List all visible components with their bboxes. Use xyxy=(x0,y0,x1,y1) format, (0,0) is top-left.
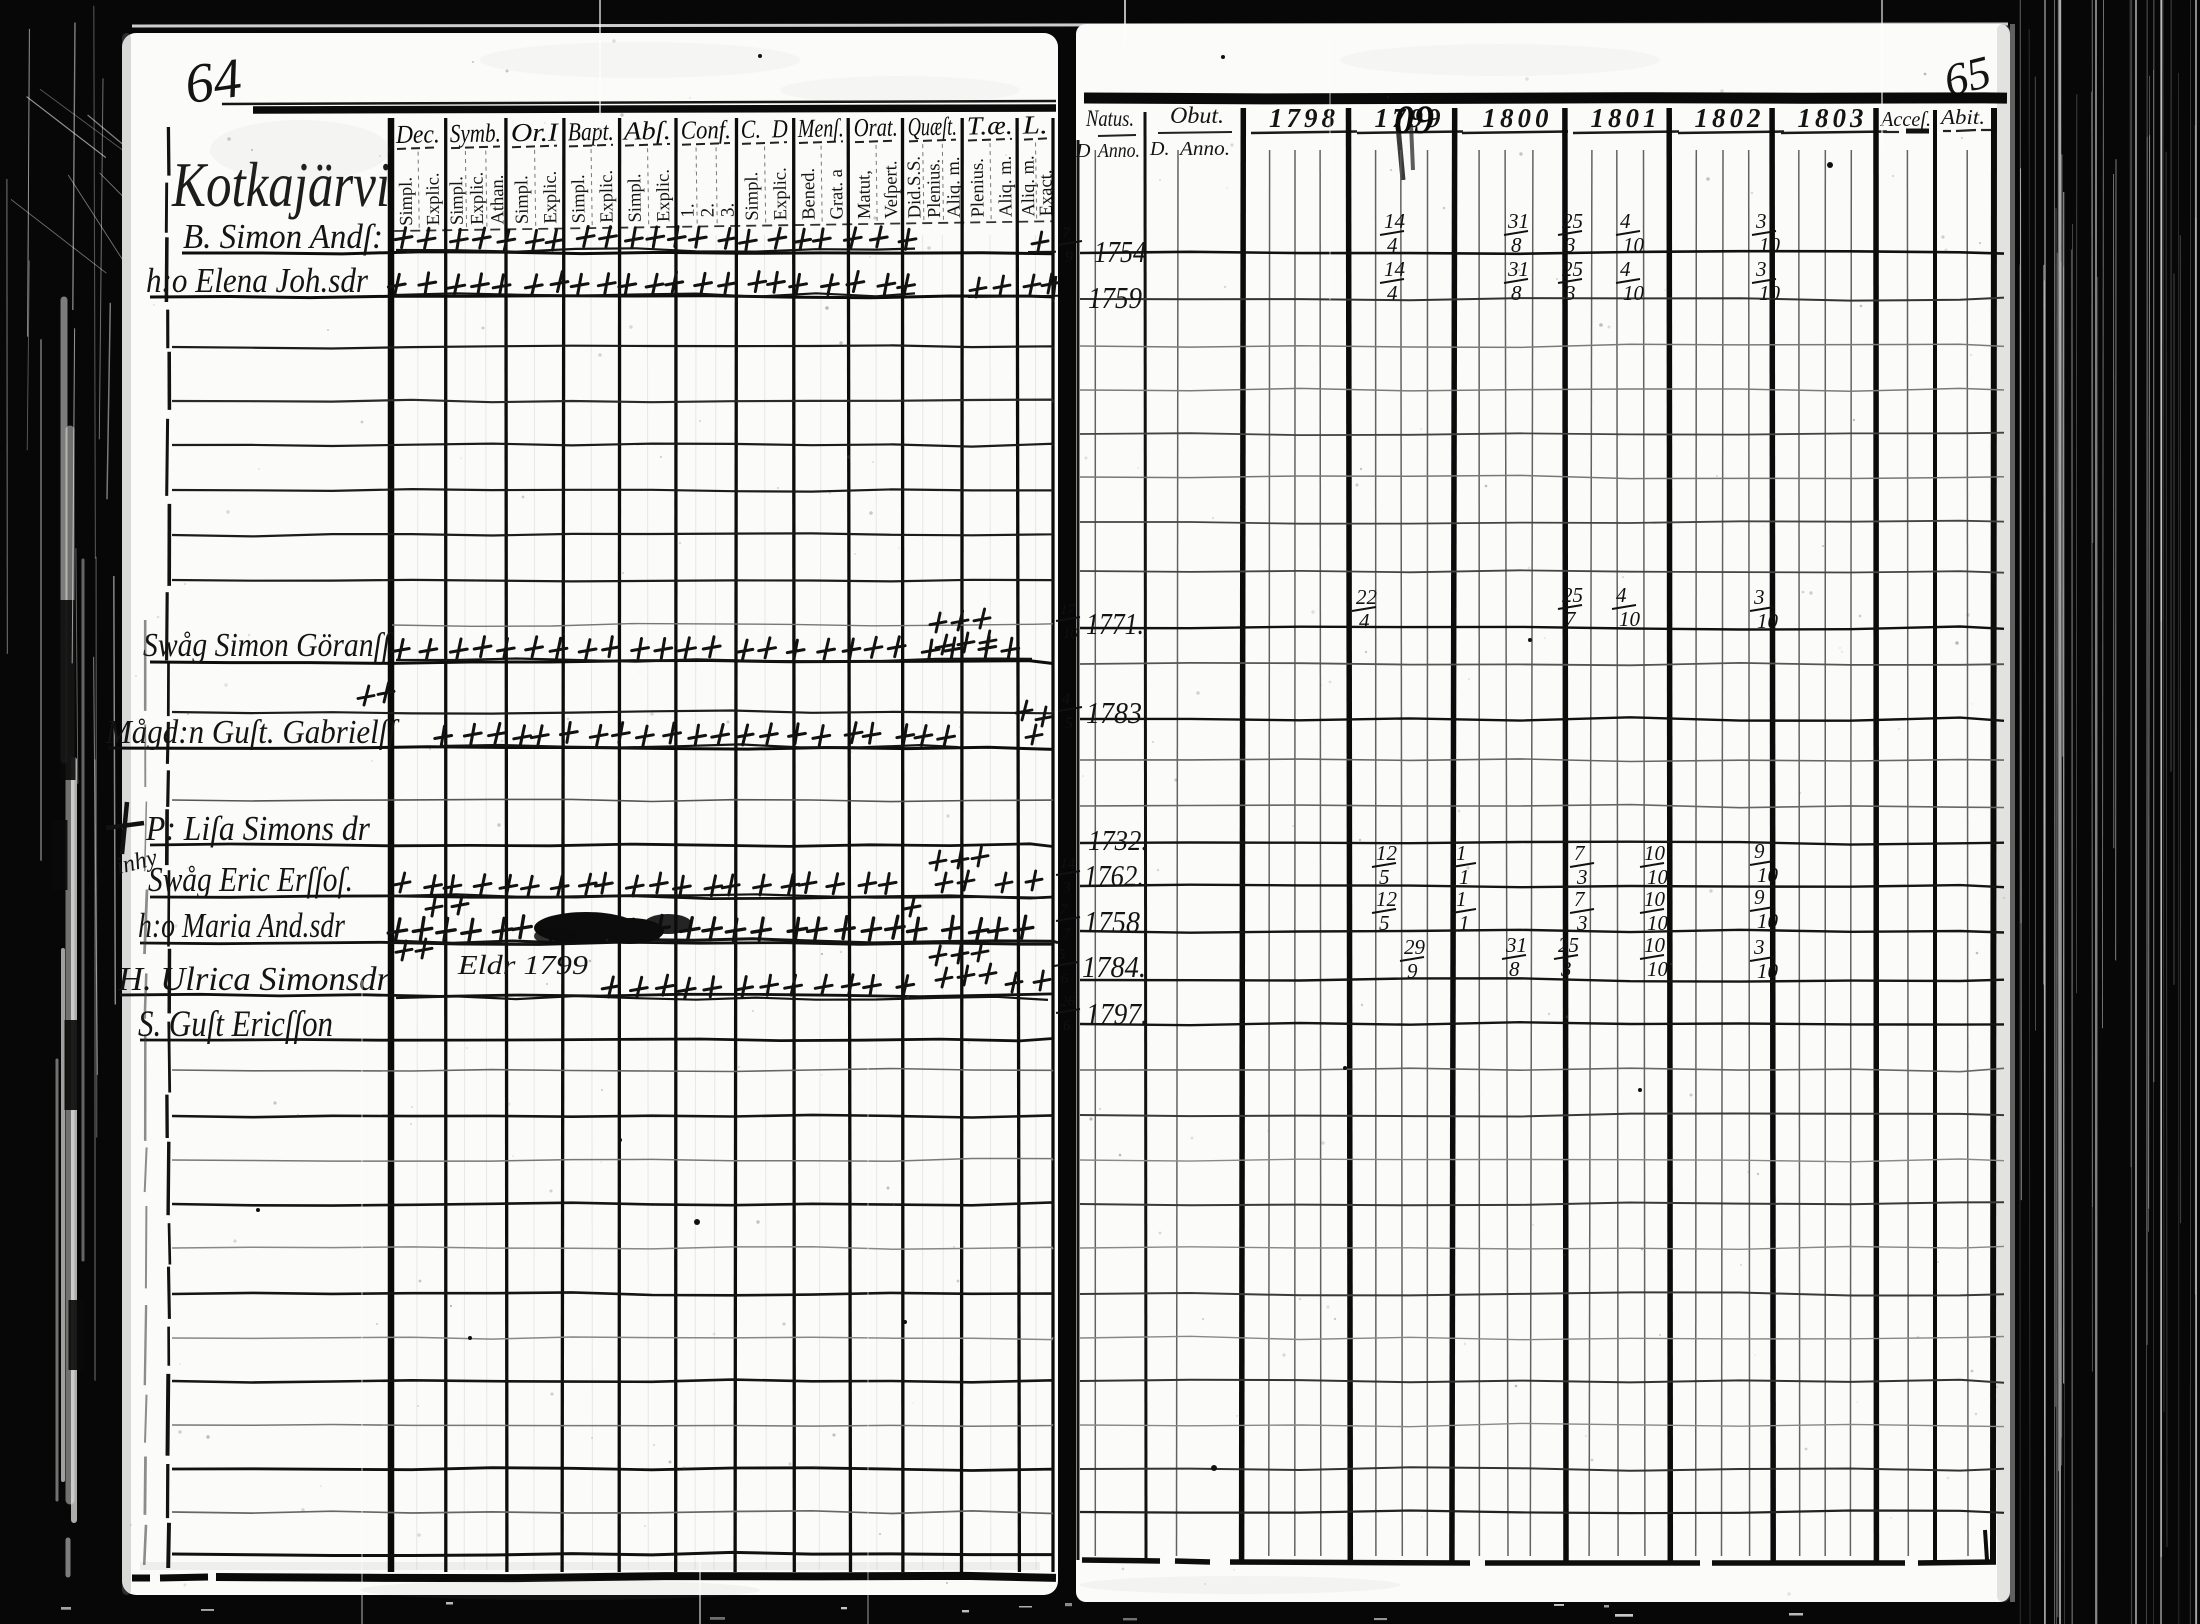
svg-text:31: 31 xyxy=(1507,209,1529,233)
svg-text:L.: L. xyxy=(1021,110,1048,139)
svg-text:4: 4 xyxy=(1620,209,1631,233)
svg-text:1758: 1758 xyxy=(1084,904,1140,939)
svg-text:8: 8 xyxy=(1511,233,1522,257)
svg-text:Menſ.: Menſ. xyxy=(797,113,844,143)
svg-text:12: 12 xyxy=(1376,841,1398,865)
svg-text:25: 25 xyxy=(1558,933,1579,957)
svg-text:1: 1 xyxy=(1456,841,1467,865)
svg-text:Natus.: Natus. xyxy=(1085,106,1134,131)
svg-text:10: 10 xyxy=(1063,626,1079,642)
svg-text:31: 31 xyxy=(1505,933,1527,957)
svg-text:6: 6 xyxy=(1063,1018,1071,1034)
svg-text:10: 10 xyxy=(1759,233,1781,257)
svg-text:10: 10 xyxy=(1647,865,1669,889)
svg-text:10: 10 xyxy=(1757,909,1779,933)
svg-text:Simpl.: Simpl. xyxy=(396,177,417,226)
svg-text:1759: 1759 xyxy=(1088,280,1142,315)
svg-text:4: 4 xyxy=(1062,691,1070,708)
svg-text:9: 9 xyxy=(1754,839,1765,863)
svg-text:D.: D. xyxy=(1149,138,1169,160)
svg-text:3: 3 xyxy=(1576,865,1588,889)
svg-text:Veſpert.: Veſpert. xyxy=(881,160,902,218)
svg-text:3: 3 xyxy=(1560,957,1572,981)
svg-text:1754: 1754 xyxy=(1094,234,1146,269)
svg-text:1: 1 xyxy=(1459,911,1470,935)
svg-text:64: 64 xyxy=(181,47,245,116)
svg-text:3: 3 xyxy=(1753,585,1765,609)
svg-text:8: 8 xyxy=(1511,281,1522,305)
svg-text:5: 5 xyxy=(1379,911,1390,935)
svg-text:1732.: 1732. xyxy=(1088,826,1148,857)
svg-text:H. Ulrica Simonsdr: H. Ulrica Simonsdr xyxy=(117,961,391,998)
svg-text:14: 14 xyxy=(1060,856,1076,872)
svg-text:Explic.: Explic. xyxy=(771,167,792,220)
svg-text:1803: 1803 xyxy=(1798,103,1868,133)
svg-text:10: 10 xyxy=(1619,607,1641,631)
svg-text:10: 10 xyxy=(1623,281,1645,305)
svg-text:Plenius.: Plenius. xyxy=(924,159,945,218)
svg-text:6: 6 xyxy=(1061,971,1069,987)
svg-text:9: 9 xyxy=(1754,885,1765,909)
svg-text:7: 7 xyxy=(1062,225,1071,242)
svg-text:3: 3 xyxy=(1564,233,1576,257)
svg-text:Anno.: Anno. xyxy=(1178,138,1230,160)
svg-text:12: 12 xyxy=(1376,887,1398,911)
svg-text:4: 4 xyxy=(1616,583,1627,607)
svg-text:1762.: 1762. xyxy=(1084,858,1144,893)
svg-text:Bened.: Bened. xyxy=(799,168,820,220)
svg-text:1783: 1783 xyxy=(1086,695,1142,730)
svg-text:25: 25 xyxy=(1562,209,1583,233)
svg-text:C. D: C. D xyxy=(741,114,789,144)
svg-text:Or.I: Or.I xyxy=(511,118,560,148)
svg-text:Explic.: Explic. xyxy=(423,172,444,225)
svg-text:Grat. a: Grat. a xyxy=(827,169,848,220)
svg-text:10: 10 xyxy=(1644,887,1666,911)
svg-text:1798: 1798 xyxy=(1269,103,1339,133)
svg-text:10: 10 xyxy=(1644,933,1666,957)
svg-text:h:o Elena Joh.sdr: h:o Elena Joh.sdr xyxy=(146,261,368,300)
svg-text:9: 9 xyxy=(1407,959,1418,983)
svg-text:Aliq. m.: Aliq. m. xyxy=(996,156,1017,217)
svg-text:Eldr 1799: Eldr 1799 xyxy=(457,950,589,980)
svg-text:1800: 1800 xyxy=(1483,103,1553,133)
svg-text:8: 8 xyxy=(1509,957,1520,981)
svg-text:Swåg Simon Göranſſ: Swåg Simon Göranſſ xyxy=(143,627,394,664)
svg-text:31: 31 xyxy=(1507,257,1529,281)
svg-text:5: 5 xyxy=(1058,947,1066,963)
svg-text:P: Liſa Simons dr: P: Liſa Simons dr xyxy=(145,809,370,848)
svg-text:1802: 1802 xyxy=(1695,103,1765,133)
svg-text:Acceſ.: Acceſ. xyxy=(1879,107,1931,131)
svg-text:1: 1 xyxy=(1456,887,1467,911)
svg-text:Orat.: Orat. xyxy=(854,113,898,143)
svg-text:1784.: 1784. xyxy=(1082,949,1146,984)
svg-text:1801: 1801 xyxy=(1591,103,1661,133)
svg-text:10: 10 xyxy=(1644,841,1666,865)
svg-text:10: 10 xyxy=(1757,609,1779,633)
svg-text:Did.S.S.: Did.S.S. xyxy=(905,156,926,218)
svg-text:Dec.: Dec. xyxy=(395,119,440,149)
svg-text:Explic.: Explic. xyxy=(654,169,675,222)
svg-text:Anno.: Anno. xyxy=(1096,140,1140,162)
svg-text:3: 3 xyxy=(1755,257,1767,281)
svg-text:3: 3 xyxy=(1564,281,1576,305)
svg-text:10: 10 xyxy=(1757,959,1779,983)
svg-text:Conf.: Conf. xyxy=(681,115,731,145)
svg-text:10: 10 xyxy=(1647,911,1669,935)
svg-text:Simpl.: Simpl. xyxy=(512,175,533,224)
svg-text:Abit.: Abit. xyxy=(1939,105,1985,129)
svg-text:3: 3 xyxy=(1753,935,1765,959)
svg-text:10: 10 xyxy=(1647,957,1669,981)
svg-text:17: 17 xyxy=(1060,602,1077,618)
svg-text:3: 3 xyxy=(1755,209,1767,233)
svg-text:Explic.: Explic. xyxy=(467,172,488,225)
svg-text:S. Guſt Ericſſon: S. Guſt Ericſſon xyxy=(138,1004,333,1045)
svg-text:1.: 1. xyxy=(677,203,698,218)
svg-text:3: 3 xyxy=(1062,880,1071,896)
svg-text:25: 25 xyxy=(1562,257,1583,281)
svg-text:Simpl.: Simpl. xyxy=(625,173,646,222)
svg-text:1771.: 1771. xyxy=(1086,606,1144,641)
svg-text:Explic.: Explic. xyxy=(597,170,618,223)
svg-text:5: 5 xyxy=(1379,865,1390,889)
svg-text:09: 09 xyxy=(1394,97,1434,142)
svg-text:2.: 2. xyxy=(697,203,718,218)
svg-text:Plenius.: Plenius. xyxy=(968,158,989,217)
svg-text:Simpl.: Simpl. xyxy=(569,174,590,223)
svg-text:Abſ.: Abſ. xyxy=(621,116,671,146)
svg-text:h:o Maria And.sdr: h:o Maria And.sdr xyxy=(138,906,345,945)
svg-text:7: 7 xyxy=(1574,841,1586,865)
svg-text:4: 4 xyxy=(1387,281,1398,305)
svg-text:Swåg Eric Erſſoſ.: Swåg Eric Erſſoſ. xyxy=(148,860,353,899)
svg-text:7: 7 xyxy=(1565,607,1577,631)
svg-text:Obut.: Obut. xyxy=(1170,103,1224,128)
svg-text:10: 10 xyxy=(1759,281,1781,305)
svg-text:14: 14 xyxy=(1384,257,1406,281)
svg-text:Simpl.: Simpl. xyxy=(742,172,763,221)
svg-text:Symb.: Symb. xyxy=(450,118,501,148)
svg-text:Matut,: Matut, xyxy=(854,170,875,219)
svg-text:4: 4 xyxy=(1359,609,1370,633)
svg-text:T.æ.: T.æ. xyxy=(967,111,1013,141)
svg-text:4: 4 xyxy=(1387,233,1398,257)
svg-text:Bapt.: Bapt. xyxy=(568,117,614,147)
svg-text:7: 7 xyxy=(1574,887,1586,911)
svg-text:1797.: 1797. xyxy=(1086,996,1148,1031)
svg-text:Mågd:n Guſt. Gabrielſſ: Mågd:n Guſt. Gabrielſſ xyxy=(105,714,400,751)
svg-text:Simpl.: Simpl. xyxy=(447,176,468,225)
svg-text:29: 29 xyxy=(1404,935,1426,959)
svg-text:25: 25 xyxy=(1562,583,1583,607)
svg-text:B. Simon Andſ:: B. Simon Andſ: xyxy=(183,217,383,256)
svg-text:Quæſt.: Quæſt. xyxy=(908,112,957,142)
svg-text:3: 3 xyxy=(1576,911,1588,935)
svg-text:Explic.: Explic. xyxy=(541,171,562,224)
svg-text:4: 4 xyxy=(1620,257,1631,281)
svg-text:10: 10 xyxy=(1623,233,1645,257)
svg-text:9: 9 xyxy=(1065,249,1073,266)
svg-text:22: 22 xyxy=(1356,585,1378,609)
svg-text:5: 5 xyxy=(1065,715,1073,732)
svg-text:10: 10 xyxy=(1757,863,1779,887)
svg-text:26: 26 xyxy=(1060,994,1076,1010)
svg-text:14: 14 xyxy=(1384,209,1406,233)
